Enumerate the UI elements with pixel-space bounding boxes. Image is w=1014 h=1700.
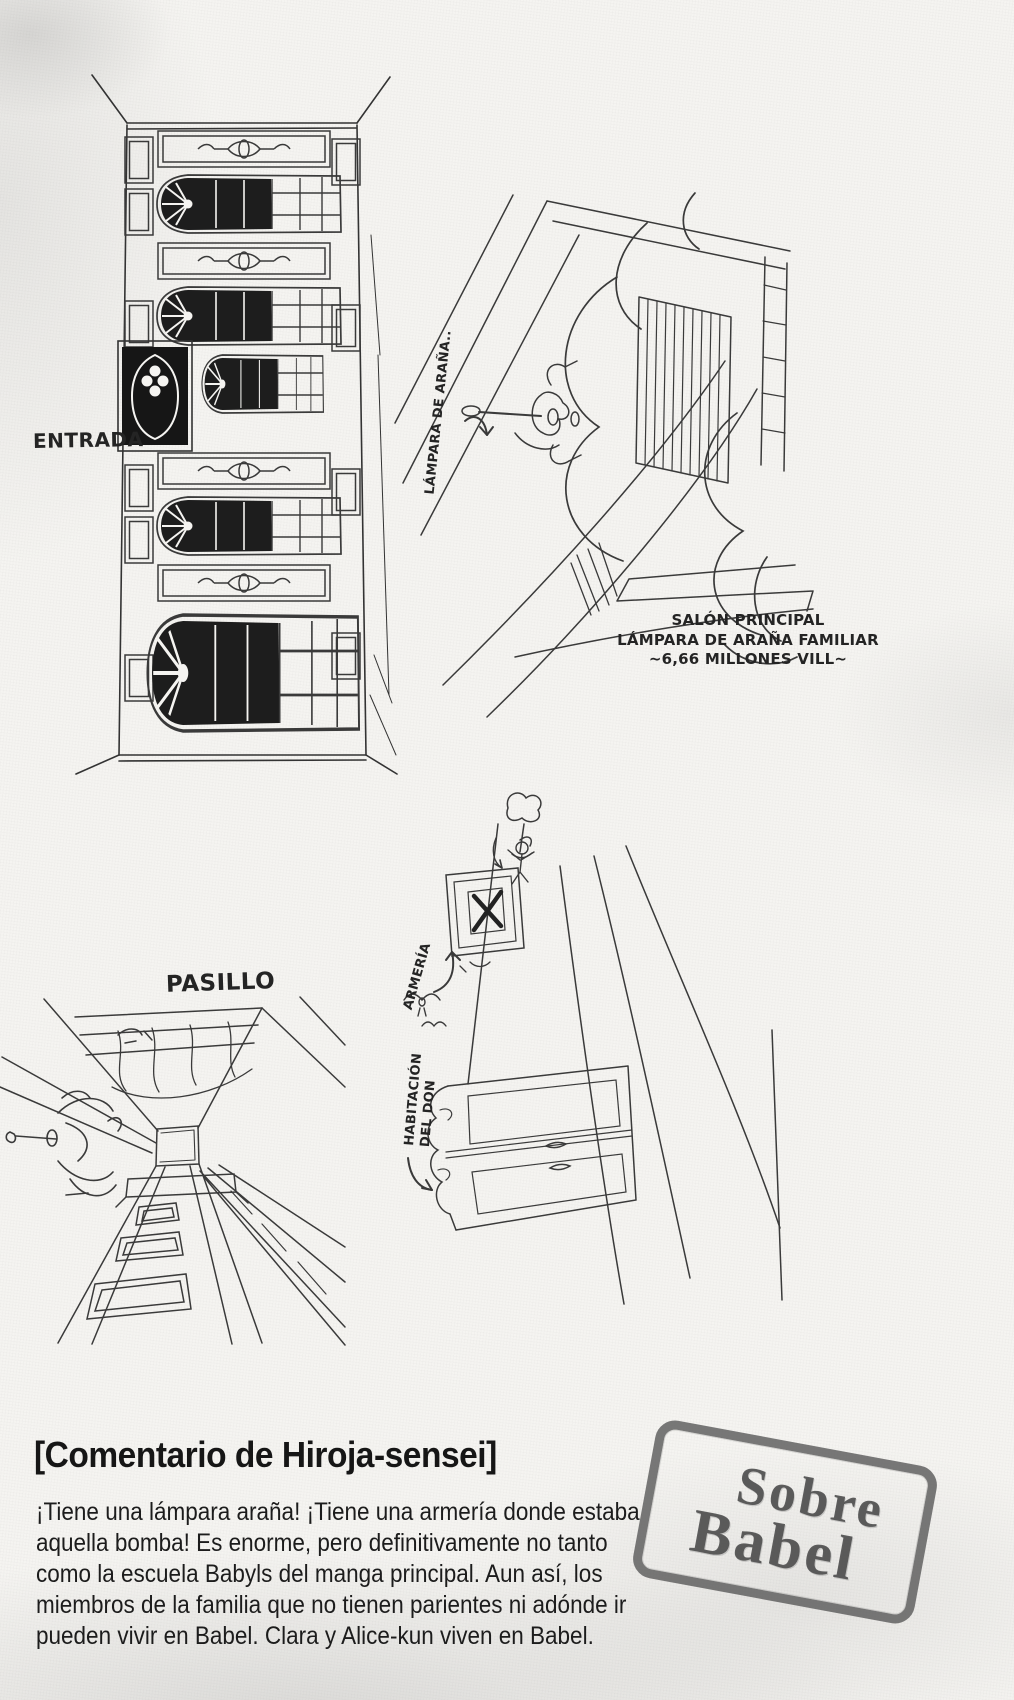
commentary-line: aquella bomba! Es enorme, pero definitiv… <box>36 1528 640 1559</box>
armeria-arrow <box>434 952 460 992</box>
wardrobe <box>428 1066 636 1230</box>
tall-window <box>761 257 787 471</box>
commentary-line: ¡Tiene una lámpara araña! ¡Tiene una arm… <box>36 1497 640 1528</box>
room-perspective-lines <box>468 824 782 1304</box>
entrance-hall-sketch <box>40 55 400 775</box>
habitacion-arrow <box>408 1158 432 1190</box>
salon-caption-line: SALÓN PRINCIPAL <box>598 611 898 631</box>
pasillo-label: PASILLO <box>166 968 276 998</box>
corridor-chandelier-doodle <box>6 1091 121 1195</box>
chandelier <box>462 361 581 464</box>
corridor-sketch <box>0 995 345 1345</box>
salon-caption-line: ~6,66 MILLONES VILL~ <box>598 650 898 670</box>
plant-doodle <box>507 793 541 858</box>
commentary-line: pueden vivir en Babel. Clara y Alice-kun… <box>36 1621 640 1652</box>
salon-principal-caption: SALÓN PRINCIPAL LÁMPARA DE ARAÑA FAMILIA… <box>598 611 898 670</box>
commentary-line: como la escuela Babyls del manga princip… <box>36 1559 640 1590</box>
staircase-railing <box>636 297 731 483</box>
salon-caption-line: LÁMPARA DE ARAÑA FAMILIAR <box>598 631 898 651</box>
manga-concept-art-page: ENTRADA LÁMPARA DE ARAÑA.. SALÓN PRINCIP… <box>0 0 1014 1700</box>
commentary-line: miembros de la familia que no tienen par… <box>36 1590 640 1621</box>
sobre-babel-stamp: Sobre Babel <box>630 1417 940 1626</box>
entrada-label: ENTRADA <box>33 427 144 453</box>
armory-room-sketch <box>370 780 790 1320</box>
corridor-ceiling-curtains <box>75 1008 262 1098</box>
commentary-heading: [Comentario de Hiroja-sensei] <box>34 1434 497 1476</box>
commentary-paragraph: ¡Tiene una lámpara araña! ¡Tiene una arm… <box>36 1497 640 1652</box>
